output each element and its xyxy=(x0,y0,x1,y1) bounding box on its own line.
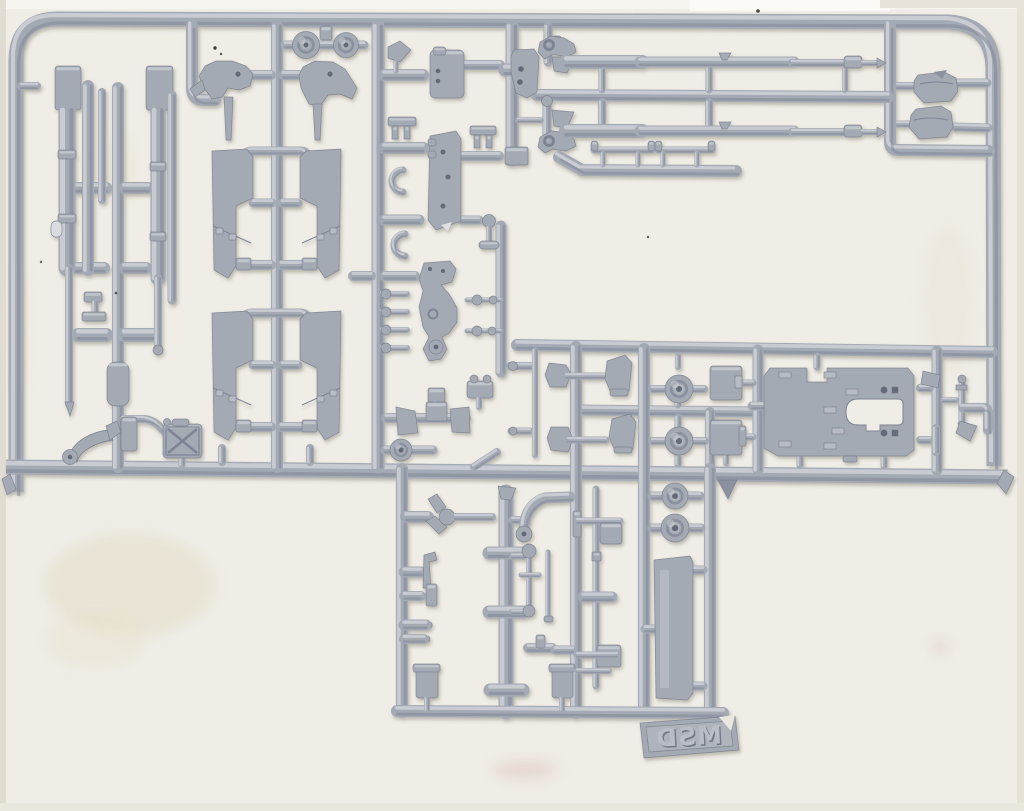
gate-stub xyxy=(652,387,664,391)
gate-stub xyxy=(645,627,656,632)
gun-barrel-breech xyxy=(566,127,642,134)
bench-leg xyxy=(474,135,480,148)
gate-stub xyxy=(384,217,419,223)
gun-barrel-long xyxy=(640,59,794,65)
plate-tab xyxy=(843,456,857,462)
quadrant-hole xyxy=(441,269,445,273)
link-bar xyxy=(521,574,539,577)
gun-barrel-taper xyxy=(792,61,846,65)
plate-sheen xyxy=(660,570,669,688)
gate-stub xyxy=(253,201,272,206)
gate-stub xyxy=(404,636,424,641)
gun-barrel-thin xyxy=(156,278,160,348)
gate-stub xyxy=(652,526,661,531)
gate-stub xyxy=(124,331,154,338)
road-wheel xyxy=(293,32,320,59)
stub-ball xyxy=(509,362,518,371)
bench-leg xyxy=(486,135,492,148)
shield-rivet xyxy=(330,228,337,234)
can-neck xyxy=(425,698,428,710)
runner-barrel-support xyxy=(537,92,888,100)
shield-rivet xyxy=(317,234,324,240)
gate-stub xyxy=(384,72,423,78)
plate-pad xyxy=(824,372,836,378)
panel-rivet xyxy=(441,204,446,209)
hammer-shaft xyxy=(568,438,606,442)
shield-rivet xyxy=(330,390,337,396)
shield-rivet xyxy=(317,396,324,402)
knob-base xyxy=(479,241,499,249)
dust-speck xyxy=(213,46,216,49)
panel-hole xyxy=(436,79,441,84)
breech-blade xyxy=(313,104,322,140)
dust-speck xyxy=(647,236,649,238)
gate-stub xyxy=(406,514,428,520)
wheel-frame-tab xyxy=(320,26,332,40)
gate-stub xyxy=(384,145,423,151)
stub-ball xyxy=(381,343,391,353)
gate-stub xyxy=(707,68,711,90)
gate-stub xyxy=(395,62,398,71)
gate-stub xyxy=(404,593,421,598)
shield-rivet xyxy=(229,234,236,240)
runner-b xyxy=(274,26,280,467)
small-cylinder xyxy=(934,428,938,452)
saddle-post xyxy=(637,153,640,165)
gate-stub xyxy=(920,386,930,390)
lug-stud xyxy=(470,375,478,383)
shield-rivet xyxy=(216,228,223,234)
bench-bracket xyxy=(388,117,416,126)
plate-hole-sq xyxy=(892,387,898,393)
rod-foot xyxy=(544,616,553,622)
gate-stub xyxy=(744,381,753,385)
gate-stub xyxy=(798,457,802,465)
gun-barrel-breech xyxy=(566,58,642,65)
stain-pink xyxy=(493,760,557,780)
gate-stub xyxy=(583,594,612,600)
gate-stub xyxy=(124,185,148,191)
gate-stub xyxy=(694,387,704,391)
muzzle-cap xyxy=(153,345,163,355)
gate-stub xyxy=(353,273,371,278)
gate-stub xyxy=(676,417,680,426)
gun-barrel-wide xyxy=(154,110,162,278)
boss-hole xyxy=(434,345,439,350)
runner-left-cluster xyxy=(115,88,121,467)
scan-top-glare xyxy=(690,0,890,11)
scan-right-edge xyxy=(1017,0,1024,811)
gun-barrel-short xyxy=(100,92,104,200)
gate-stub xyxy=(282,363,298,368)
seat-arm xyxy=(577,669,609,672)
scan-bottom-edge xyxy=(0,803,1024,811)
t-handle xyxy=(555,648,573,653)
bench-leg xyxy=(404,126,410,139)
barbell-disc xyxy=(472,326,482,336)
link-ball xyxy=(523,605,535,617)
gate-stub xyxy=(652,494,662,499)
oil-can xyxy=(552,668,573,698)
gun-barrel xyxy=(85,86,91,270)
dust-speck xyxy=(220,53,222,55)
can-cap xyxy=(549,664,575,672)
small-bracket xyxy=(82,312,106,321)
gun-barrel-wide xyxy=(63,110,72,268)
stub-ball xyxy=(381,325,391,335)
gate-stub xyxy=(897,84,915,88)
stub-ball xyxy=(381,307,391,317)
canvas-cover xyxy=(909,106,953,139)
gate-stub xyxy=(958,81,987,86)
side-plate xyxy=(654,556,693,700)
saddle-post xyxy=(696,153,699,165)
cross-wedge xyxy=(396,407,418,435)
muzzle-tip xyxy=(862,130,878,133)
gate-stub xyxy=(404,622,426,628)
runner-sleeve xyxy=(107,362,129,406)
can-cap xyxy=(413,664,440,672)
panel-knuckle xyxy=(428,151,436,158)
shield-rivet xyxy=(229,396,236,402)
runner-lower-left xyxy=(399,469,405,712)
shield-rivet xyxy=(216,390,223,396)
chisel-part xyxy=(609,414,636,451)
gate-stub xyxy=(843,69,846,90)
runner-mid xyxy=(576,407,763,415)
scan-top-right-edge xyxy=(880,0,1024,8)
gate-stub xyxy=(308,448,312,462)
d-bracket xyxy=(511,49,539,98)
gate-stub xyxy=(724,455,727,463)
gun-barrel xyxy=(170,95,175,300)
gate-stub xyxy=(815,356,819,367)
quadrant-hole xyxy=(428,267,432,271)
muzzle-tip xyxy=(862,61,878,64)
dust-speck xyxy=(115,292,118,295)
saddle-nub xyxy=(591,141,598,151)
stub-ball xyxy=(509,427,517,435)
t-handle-tab xyxy=(536,635,545,648)
scan-left-edge xyxy=(0,0,6,811)
knob-stem xyxy=(487,227,490,242)
plate-hole xyxy=(881,430,888,437)
runner-d xyxy=(509,26,516,160)
link-ball xyxy=(522,544,536,558)
sprue-scan-canvas: MSDMSD xyxy=(0,0,1024,811)
gate-stub xyxy=(692,684,703,689)
cross-block xyxy=(426,402,447,421)
gun-barrel-thin xyxy=(67,268,71,404)
gate-stub xyxy=(477,398,480,407)
panel-rivet xyxy=(441,150,446,155)
dust-speck xyxy=(756,9,760,13)
wheel-hub xyxy=(661,514,689,542)
dust-speck xyxy=(40,261,42,263)
gate-stub xyxy=(21,84,37,88)
gun-barrel-long xyxy=(640,128,794,134)
gate-stub xyxy=(404,569,421,575)
axle-flange xyxy=(390,439,412,461)
barrel-collar xyxy=(150,232,166,241)
stub-ball xyxy=(381,289,391,299)
plate-pad xyxy=(824,443,836,449)
plate-pad xyxy=(846,389,858,395)
plate-pad xyxy=(779,372,791,378)
barbell-ball xyxy=(489,296,497,304)
gate-stub xyxy=(281,262,303,267)
svg-text:MSD: MSD xyxy=(655,720,723,752)
gate-stub xyxy=(124,265,146,271)
gate-stub xyxy=(78,331,106,338)
gate-stub xyxy=(252,72,271,77)
gate-stub xyxy=(600,68,604,90)
jerry-cap xyxy=(164,419,171,426)
gate-stub xyxy=(384,273,415,278)
flange-hole xyxy=(68,455,73,460)
stowage-box xyxy=(710,420,742,455)
gate-stub xyxy=(253,363,272,368)
chisel-foot xyxy=(614,447,632,453)
cross-wedge xyxy=(450,407,470,433)
scanned-sprue-photo: MSDMSD xyxy=(0,0,1024,811)
bracket-hole xyxy=(517,79,523,85)
stain xyxy=(45,610,145,670)
cylinder-cap xyxy=(542,96,553,107)
shield-tab xyxy=(236,258,251,270)
bracket-hole xyxy=(518,66,524,72)
plate-hole-sq xyxy=(892,430,898,436)
fork-stem xyxy=(455,515,492,519)
saddle-post xyxy=(662,153,665,165)
pencil-collar xyxy=(956,385,967,390)
stain-pink xyxy=(932,640,948,652)
plate-pad xyxy=(824,407,836,413)
gate-stub xyxy=(652,439,664,443)
hatch-panel xyxy=(430,50,464,98)
shield-tab xyxy=(236,420,251,432)
d-block xyxy=(505,147,528,165)
saddle-nub xyxy=(708,141,715,151)
barbell-ball xyxy=(488,327,496,335)
plate-pad xyxy=(832,428,844,434)
runner-c xyxy=(375,26,382,467)
saddle-bar xyxy=(658,148,712,152)
oil-can xyxy=(416,668,438,698)
panel-knuckle xyxy=(433,47,446,55)
gate-stub xyxy=(955,125,988,131)
road-wheel xyxy=(334,33,359,58)
gate-stub xyxy=(461,153,499,158)
breech-hole xyxy=(235,71,240,76)
side-block xyxy=(121,417,137,451)
bench-leg xyxy=(392,126,398,139)
gate-stub xyxy=(518,118,541,121)
bench-bracket xyxy=(470,126,496,135)
link-rod xyxy=(527,553,530,609)
gate-stub xyxy=(465,62,500,67)
box-notch xyxy=(735,376,742,388)
barbell-disc xyxy=(472,295,482,305)
white-nub xyxy=(51,221,62,237)
shield-tab xyxy=(302,258,317,270)
gate-stub xyxy=(283,72,299,77)
flange-hole xyxy=(522,532,527,537)
lug-stud xyxy=(483,375,491,383)
gate-stub xyxy=(689,526,701,531)
runner-lower-right xyxy=(707,469,713,709)
panel-knuckle xyxy=(428,139,436,146)
wheel-hub xyxy=(665,427,693,455)
seat-arm xyxy=(577,519,620,523)
gate-stub xyxy=(920,438,930,442)
runner-feed xyxy=(502,492,510,712)
shield-tab xyxy=(302,420,317,432)
hammer-shaft xyxy=(566,374,606,378)
breech-blade xyxy=(224,97,233,140)
small-square xyxy=(592,552,601,561)
chisel-foot xyxy=(610,389,628,396)
seat-block xyxy=(600,523,622,544)
wheel-hub xyxy=(662,483,688,509)
gate-stub xyxy=(707,102,711,126)
can-neck xyxy=(560,698,563,710)
gate-stub xyxy=(676,356,679,367)
gate-stub xyxy=(943,398,956,401)
panel-hole xyxy=(436,69,441,74)
gate-stub xyxy=(600,102,604,124)
saddle-nub xyxy=(655,141,662,151)
barrel-collar xyxy=(150,162,166,171)
plate-hole xyxy=(881,387,888,394)
canvas-cover xyxy=(914,72,958,103)
gate-stub xyxy=(694,439,705,443)
small-blade xyxy=(426,584,437,606)
saddle-nub xyxy=(648,141,655,151)
gun-barrel-taper xyxy=(792,130,846,134)
gate-stub xyxy=(281,424,303,429)
panel-rivet xyxy=(446,175,451,180)
gate-stub xyxy=(282,201,298,206)
jerry-handle xyxy=(172,419,189,426)
thin-rod xyxy=(547,552,550,618)
feed-boss xyxy=(490,687,523,694)
gate-stub xyxy=(692,568,703,573)
saddle-post xyxy=(602,153,605,165)
barrel-collar xyxy=(58,214,76,223)
seat-arm xyxy=(577,653,617,657)
gate-stub xyxy=(676,457,680,464)
gate-stub xyxy=(688,494,700,499)
pencil-nub xyxy=(958,375,966,383)
box-flap xyxy=(739,426,746,446)
chisel-part xyxy=(605,355,632,393)
gate-stub xyxy=(882,458,886,466)
gate-stub xyxy=(220,448,224,462)
msd-tag-text: MSD xyxy=(655,720,723,752)
gate-stub xyxy=(461,218,479,223)
plate-pad xyxy=(779,441,791,447)
thin-rod-upper xyxy=(533,350,536,455)
wheel-hub xyxy=(665,375,693,403)
runner-f xyxy=(641,349,647,712)
breech-hole xyxy=(327,71,332,76)
barrel-collar xyxy=(58,150,76,159)
